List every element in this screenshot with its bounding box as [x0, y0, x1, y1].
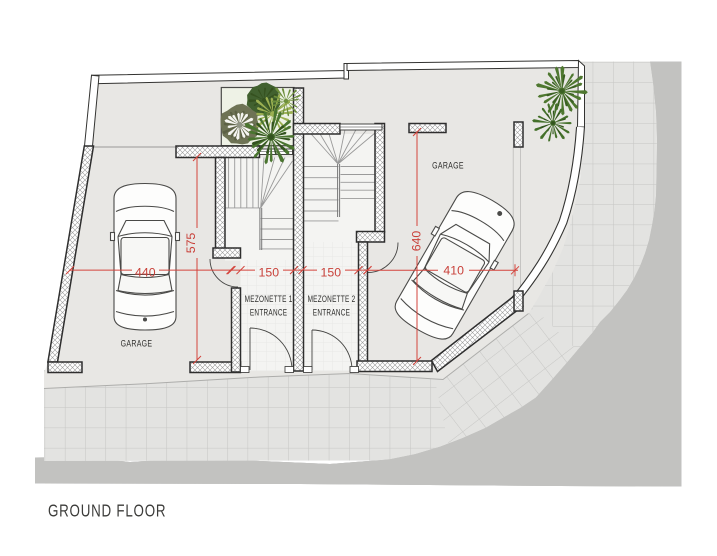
svg-text:640: 640 — [410, 231, 424, 252]
svg-text:440: 440 — [135, 265, 156, 279]
svg-text:ENTRANCE: ENTRANCE — [313, 307, 351, 318]
svg-text:MEZONETTE 1: MEZONETTE 1 — [245, 294, 293, 305]
svg-text:GROUND FLOOR: GROUND FLOOR — [48, 502, 166, 521]
svg-text:150: 150 — [321, 265, 342, 279]
svg-text:410: 410 — [443, 264, 464, 278]
svg-text:150: 150 — [259, 265, 280, 279]
svg-text:GARAGE: GARAGE — [432, 159, 464, 170]
svg-text:575: 575 — [184, 233, 198, 254]
svg-text:GARAGE: GARAGE — [121, 337, 153, 348]
svg-text:MEZONETTE 2: MEZONETTE 2 — [308, 294, 356, 305]
svg-text:ENTRANCE: ENTRANCE — [250, 307, 288, 318]
